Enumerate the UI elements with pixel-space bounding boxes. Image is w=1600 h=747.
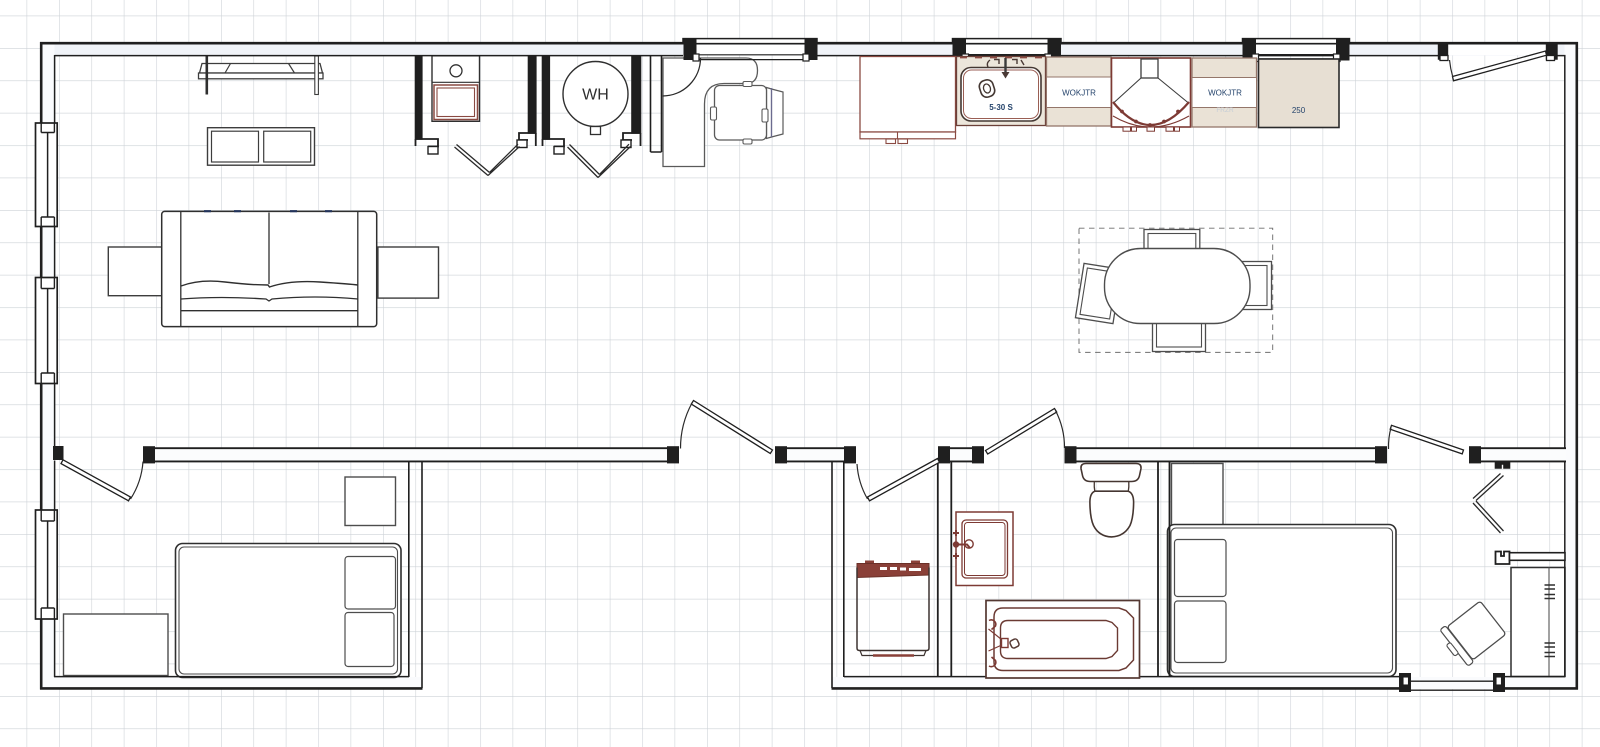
svg-text:WOKJTR: WOKJTR	[1208, 89, 1242, 98]
svg-text:5-30 S: 5-30 S	[989, 103, 1013, 112]
svg-text:250: 250	[1292, 106, 1306, 115]
svg-text:WH: WH	[582, 87, 609, 104]
svg-text:WOKJTR: WOKJTR	[1062, 89, 1096, 98]
svg-text:FRZR: FRZR	[1216, 107, 1234, 114]
